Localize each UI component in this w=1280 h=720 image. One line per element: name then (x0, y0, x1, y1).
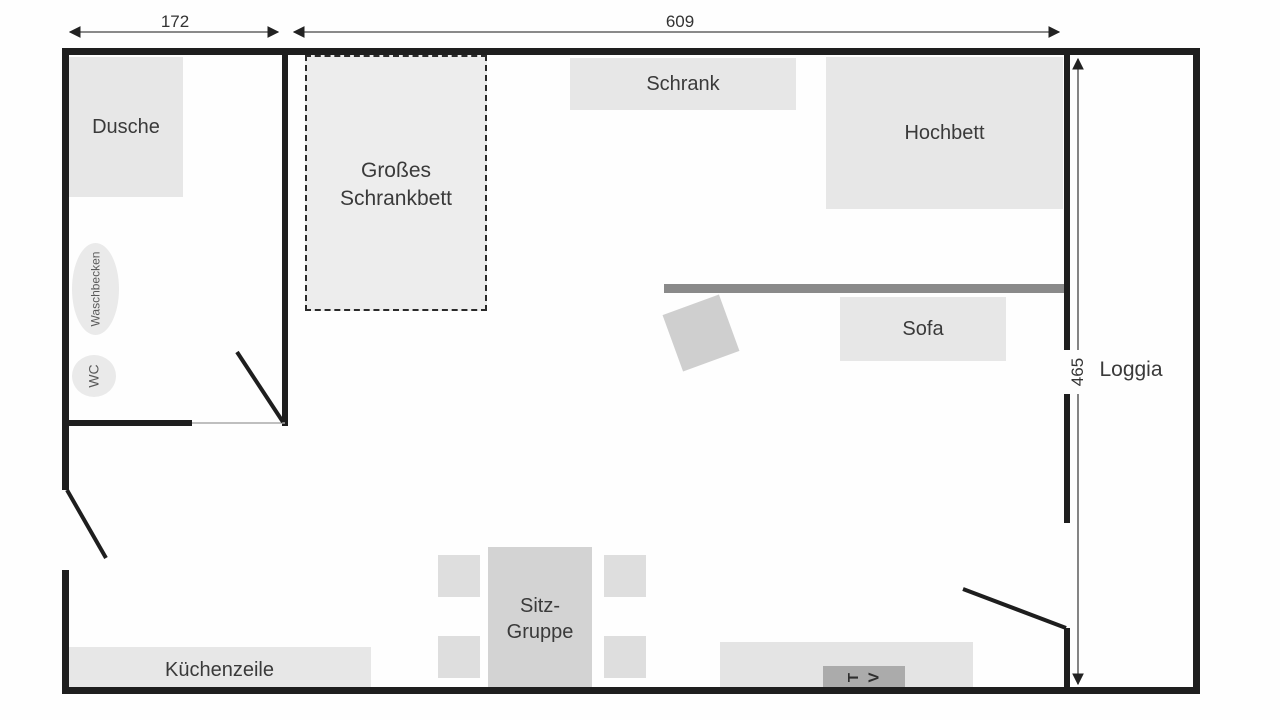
loft-bed-label: Hochbett (904, 120, 984, 146)
tv-area: TV (823, 666, 905, 688)
wall-bottom (62, 687, 1200, 694)
chair-top-right (604, 555, 646, 597)
dimension-label-main-width: 609 (655, 12, 705, 32)
wall-main-right-upper (1064, 48, 1070, 523)
wall-right-outer (1193, 48, 1200, 694)
wardrobe-area: Schrank (570, 58, 796, 110)
room-divider-bar (664, 284, 1064, 293)
floor-plan: Dusche Großes Schrankbett Schrank Hochbe… (0, 0, 1280, 720)
cabinet-bed-label: Großes Schrankbett (321, 57, 471, 214)
washbasin-area: Waschbecken (72, 243, 119, 335)
chair-bottom-left (438, 636, 480, 678)
chair-bottom-right (604, 636, 646, 678)
wall-bathroom-right (282, 48, 288, 426)
cabinet-bed-area: Großes Schrankbett (305, 55, 487, 311)
bathroom-door-leaf (237, 352, 283, 422)
dining-set-label: Sitz-Gruppe (490, 593, 590, 645)
dimension-label-bathroom-width: 172 (150, 12, 200, 32)
toilet-label: WC (86, 364, 102, 387)
shower-label: Dusche (92, 114, 160, 140)
sofa-area: Sofa (840, 297, 1006, 361)
wall-bathroom-bottom (62, 420, 192, 426)
loggia-door-leaf (963, 589, 1066, 628)
washbasin-label: Waschbecken (89, 252, 103, 327)
wall-main-right-stub (1064, 628, 1070, 688)
chair-top-left (438, 555, 480, 597)
dining-table-area: Sitz-Gruppe (488, 547, 592, 690)
loft-bed-area: Hochbett (826, 57, 1063, 209)
entry-door-leaf (67, 490, 106, 558)
tilted-furniture-square (663, 295, 740, 372)
wall-left-lower (62, 570, 69, 694)
wardrobe-label: Schrank (646, 71, 719, 97)
loggia-label: Loggia (1076, 358, 1186, 382)
wall-top (62, 48, 1200, 55)
kitchenette-area: Küchenzeile (68, 647, 371, 692)
kitchenette-label: Küchenzeile (165, 657, 274, 683)
toilet-area: WC (72, 355, 116, 397)
shower-area: Dusche (69, 57, 183, 197)
sofa-label: Sofa (902, 316, 943, 342)
